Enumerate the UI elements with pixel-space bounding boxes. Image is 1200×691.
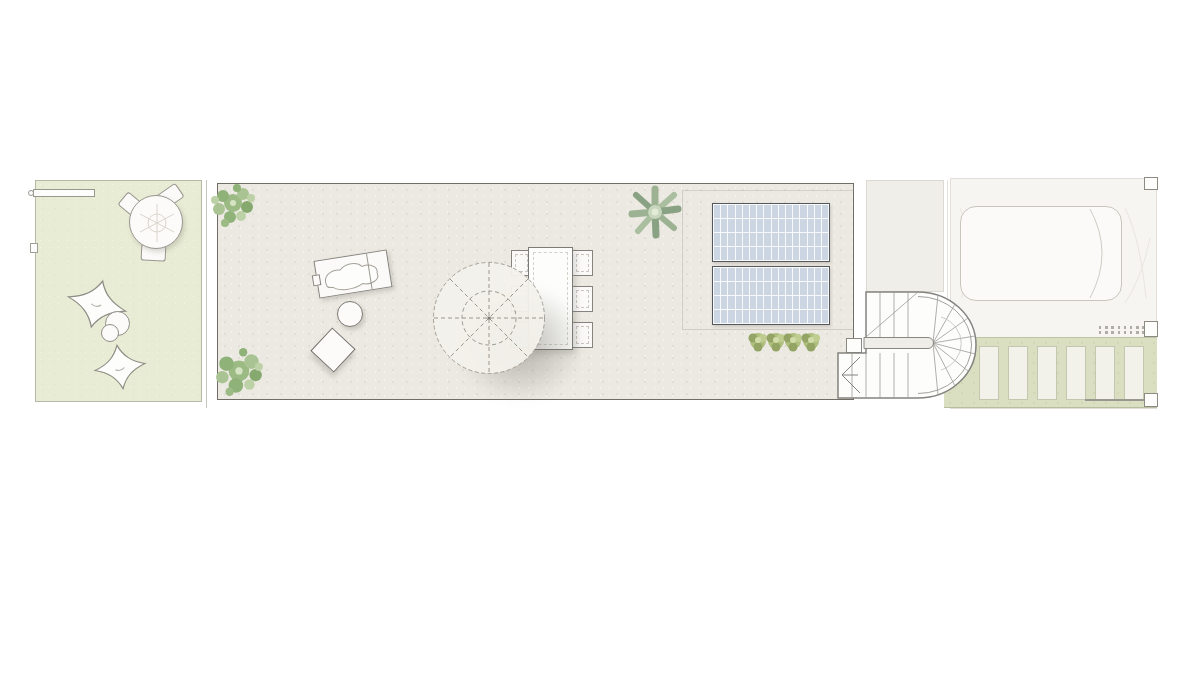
table-top-detail bbox=[130, 196, 184, 250]
edge-connection-tick bbox=[30, 243, 38, 253]
wall-tab bbox=[1144, 321, 1158, 337]
shrub-row bbox=[746, 328, 826, 354]
section-marker-hook-icon bbox=[28, 190, 34, 196]
parasol-icon bbox=[432, 261, 546, 375]
paver bbox=[1066, 346, 1086, 400]
car-windshield-line bbox=[1080, 206, 1124, 301]
side-table bbox=[337, 301, 363, 327]
wall-tab bbox=[1144, 177, 1158, 190]
plant-icon bbox=[207, 181, 259, 231]
paver bbox=[1124, 346, 1144, 400]
winder-staircase bbox=[820, 270, 990, 410]
paver bbox=[1008, 346, 1028, 400]
paver bbox=[1095, 346, 1115, 400]
solar-panel-group bbox=[712, 203, 828, 323]
section-marker-bar bbox=[33, 189, 95, 197]
plant-icon bbox=[211, 346, 267, 398]
solar-panel bbox=[712, 203, 830, 262]
roof-terrace-plan bbox=[0, 0, 1200, 691]
pouf-small bbox=[101, 324, 119, 342]
shrub-icon bbox=[799, 328, 823, 354]
garden-round-table bbox=[129, 195, 183, 249]
dining-chair bbox=[572, 250, 593, 276]
paver bbox=[1037, 346, 1057, 400]
beanbag-chair bbox=[87, 337, 154, 397]
lounger-handle bbox=[312, 274, 322, 286]
wall-tab bbox=[1144, 393, 1158, 407]
agave-plant-icon bbox=[626, 183, 684, 241]
solar-panel bbox=[712, 266, 830, 325]
